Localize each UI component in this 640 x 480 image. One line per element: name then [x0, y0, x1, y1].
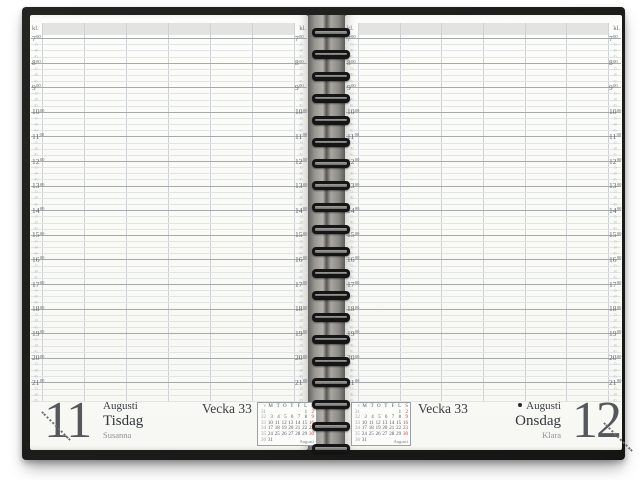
quarter-line	[346, 389, 621, 390]
hour-minutes-superscript: 00	[303, 305, 308, 310]
hour-number: 16	[295, 255, 303, 264]
hour-number: 13	[609, 181, 617, 190]
quarter-tick-label: 15	[297, 166, 305, 170]
quarter-line	[31, 118, 307, 119]
quarter-tick-label: 30	[611, 197, 619, 201]
spiral-loop	[312, 422, 350, 431]
quarter-line	[346, 204, 621, 205]
right-page: kl.kl.7007001515303045458008001515303045…	[345, 15, 622, 450]
spiral-loop-highlight	[315, 184, 347, 187]
hour-line	[346, 284, 621, 285]
hour-label: 1600	[347, 256, 359, 264]
quarter-line	[31, 346, 307, 347]
quarter-line	[346, 346, 621, 347]
quarter-tick-label: 15	[348, 387, 356, 391]
hour-minutes-superscript: 00	[355, 206, 360, 211]
quarter-line	[31, 370, 307, 371]
quarter-tick-label: 30	[32, 344, 39, 348]
hour-minutes-superscript: 00	[40, 329, 45, 334]
quarter-tick-label: 15	[611, 264, 619, 268]
quarter-line	[346, 69, 621, 70]
hour-label: 1700	[347, 281, 359, 289]
hour-number: 14	[295, 206, 303, 215]
quarter-tick-label: 30	[32, 74, 39, 78]
quarter-tick-label: 15	[611, 289, 619, 293]
quarter-tick-label: 15	[32, 387, 39, 391]
spiral-loop	[312, 181, 350, 190]
hour-number: 15	[295, 230, 303, 239]
quarter-tick-label: 15	[297, 215, 305, 219]
hour-label: 1200	[609, 158, 621, 166]
mini-calendar-day-cell	[288, 438, 295, 444]
hour-minutes-superscript: 00	[355, 354, 360, 359]
hour-minutes-superscript: 00	[40, 108, 45, 113]
quarter-tick-label: 30	[297, 49, 305, 53]
hour-label: 1400	[32, 207, 44, 215]
quarter-tick-label: 30	[32, 49, 39, 53]
quarter-tick-label: 15	[611, 363, 619, 367]
spiral-loop-highlight	[315, 403, 347, 406]
quarter-tick-label: 30	[32, 270, 39, 274]
quarter-tick-label: 15	[297, 264, 305, 268]
quarter-tick-label: 30	[32, 295, 39, 299]
quarter-line	[31, 130, 307, 131]
quarter-tick-label: 15	[32, 313, 39, 317]
column-divider	[126, 23, 127, 401]
quarter-line	[31, 100, 307, 101]
mini-calendar-grid: vMTOTFLS31123234567893310111213141516341…	[353, 404, 409, 443]
hour-number: 12	[32, 157, 40, 166]
hour-line	[346, 186, 621, 187]
hour-number: 11	[32, 132, 39, 141]
right-mini-calendar: vMTOTFLS31123234567893310111213141516341…	[351, 402, 411, 446]
hour-number: 21	[32, 378, 40, 387]
quarter-tick-label: 30	[348, 221, 356, 225]
spiral-loop	[312, 225, 350, 234]
hour-minutes-superscript: 00	[355, 378, 360, 383]
hour-label: 1200	[32, 158, 44, 166]
quarter-tick-label: 15	[32, 67, 39, 71]
hour-line	[31, 382, 307, 383]
hour-minutes-superscript: 00	[355, 108, 360, 113]
quarter-line	[346, 296, 621, 297]
hour-minutes-superscript: 00	[40, 206, 45, 211]
quarter-tick-label: 30	[297, 74, 305, 78]
quarter-tick-label: 15	[297, 190, 305, 194]
spiral-loop-highlight	[315, 141, 347, 144]
hour-minutes-superscript: 00	[617, 354, 622, 359]
mini-calendar-day-cell: 36	[259, 438, 267, 444]
column-divider	[441, 23, 442, 401]
spiral-loop	[312, 291, 350, 300]
hour-label: 1700	[609, 281, 621, 289]
spiral-loop-highlight	[315, 316, 347, 319]
hour-line	[346, 358, 621, 359]
right-day-number: 12	[572, 398, 620, 444]
hour-line	[346, 112, 621, 113]
quarter-line	[346, 327, 621, 328]
hour-label: 700	[609, 35, 617, 43]
hour-label: 1100	[295, 133, 307, 141]
hour-line	[31, 235, 307, 236]
hour-label: 2100	[32, 379, 44, 387]
spiral-loop-highlight	[315, 381, 347, 384]
quarter-line	[346, 229, 621, 230]
quarter-tick-label: 30	[611, 270, 619, 274]
spiral-loop	[312, 269, 350, 278]
hour-minutes-superscript: 00	[303, 329, 308, 334]
quarter-line	[31, 247, 307, 248]
left-nameday-label: Susanna	[103, 430, 143, 440]
spiral-loop	[312, 247, 350, 256]
quarter-tick-label: 30	[32, 246, 39, 250]
quarter-tick-label: 30	[611, 123, 619, 127]
quarter-tick-label: 15	[297, 43, 305, 47]
hour-number: 10	[32, 107, 40, 116]
hour-number: 18	[609, 304, 617, 313]
quarter-line	[346, 100, 621, 101]
quarter-tick-label: 30	[297, 369, 305, 373]
right-month-row: Augusti	[459, 400, 561, 412]
quarter-line	[346, 192, 621, 193]
hour-line	[31, 186, 307, 187]
spiral-loop	[312, 94, 350, 103]
hour-number: 14	[32, 206, 40, 215]
hour-number: 20	[295, 353, 303, 362]
quarter-line	[346, 167, 621, 168]
right-nameday-label: Klara	[459, 430, 561, 440]
quarter-line	[346, 143, 621, 144]
quarter-line	[31, 204, 307, 205]
quarter-tick-label: 30	[348, 393, 356, 397]
hour-label: 800	[347, 59, 355, 67]
quarter-line	[31, 364, 307, 365]
hour-line	[31, 210, 307, 211]
quarter-tick-label: 30	[297, 295, 305, 299]
hour-minutes-superscript: 00	[617, 132, 622, 137]
mini-calendar-month-label: Augusti	[393, 439, 408, 444]
hour-minutes-superscript: 00	[617, 378, 622, 383]
hour-number: 19	[32, 329, 40, 338]
quarter-tick-label: 15	[611, 141, 619, 145]
hour-line	[346, 309, 621, 310]
hour-minutes-superscript: 00	[303, 280, 308, 285]
quarter-line	[346, 266, 621, 267]
hour-number: 13	[32, 181, 40, 190]
hour-line	[346, 235, 621, 236]
hour-minutes-superscript: 00	[36, 34, 41, 39]
column-divider	[168, 23, 169, 401]
hour-minutes-superscript: 00	[299, 59, 304, 64]
hour-number: 21	[609, 378, 617, 387]
hour-minutes-superscript: 00	[617, 157, 622, 162]
hour-minutes-superscript: 00	[351, 83, 356, 88]
hour-label: 800	[32, 59, 40, 67]
hour-minutes-superscript: 00	[355, 231, 360, 236]
quarter-line	[31, 93, 307, 94]
hour-minutes-superscript: 00	[617, 182, 622, 187]
hour-label: 1600	[609, 256, 621, 264]
hour-minutes-superscript: 00	[303, 354, 308, 359]
hour-label: 1500	[609, 231, 621, 239]
hour-minutes-superscript: 00	[303, 255, 308, 260]
mini-calendar-month-label: Augusti	[299, 439, 314, 444]
quarter-tick-label: 15	[611, 92, 619, 96]
time-header-label: kl.	[32, 25, 39, 33]
quarter-tick-label: 30	[348, 147, 356, 151]
hour-number: 20	[609, 353, 617, 362]
quarter-line	[31, 296, 307, 297]
hour-minutes-superscript: 00	[36, 59, 41, 64]
hour-label: 900	[295, 84, 303, 92]
quarter-line	[31, 315, 307, 316]
hour-number: 16	[32, 255, 40, 264]
quarter-line	[346, 370, 621, 371]
hour-label: 1400	[295, 207, 307, 215]
quarter-line	[346, 57, 621, 58]
quarter-line	[346, 278, 621, 279]
quarter-line	[31, 272, 307, 273]
quarter-tick-label: 30	[32, 98, 39, 102]
spiral-loop-highlight	[315, 272, 347, 275]
quarter-line	[31, 278, 307, 279]
hour-minutes-superscript: 00	[351, 59, 356, 64]
hour-label: 1700	[32, 281, 44, 289]
left-month-label: Augusti	[103, 400, 143, 412]
quarter-tick-label: 30	[32, 393, 39, 397]
hour-label: 1100	[609, 133, 621, 141]
quarter-tick-label: 15	[611, 338, 619, 342]
hour-line	[31, 284, 307, 285]
hour-label: 1400	[609, 207, 621, 215]
quarter-tick-label: 15	[32, 338, 39, 342]
quarter-line	[31, 216, 307, 217]
hour-minutes-superscript: 00	[617, 280, 622, 285]
quarter-line	[31, 179, 307, 180]
hour-number: 17	[609, 280, 617, 289]
spiral-loop	[312, 400, 350, 409]
spiral-loop-highlight	[315, 250, 347, 253]
quarter-line	[31, 327, 307, 328]
quarter-tick-label: 15	[297, 117, 305, 121]
hour-line	[31, 38, 307, 39]
hour-number: 15	[609, 230, 617, 239]
hour-number: 17	[295, 280, 303, 289]
quarter-line	[346, 272, 621, 273]
quarter-tick-label: 30	[611, 172, 619, 176]
hour-label: 1900	[32, 330, 44, 338]
hour-number: 10	[609, 107, 617, 116]
quarter-line	[31, 69, 307, 70]
quarter-tick-label: 15	[348, 43, 356, 47]
quarter-line	[31, 173, 307, 174]
spiral-loop-highlight	[315, 162, 347, 165]
quarter-tick-label: 15	[611, 190, 619, 194]
hour-line	[346, 136, 621, 137]
hour-line	[31, 112, 307, 113]
quarter-tick-label: 30	[32, 320, 39, 324]
hour-minutes-superscript: 00	[617, 231, 622, 236]
quarter-line	[346, 124, 621, 125]
hour-number: 12	[609, 157, 617, 166]
mini-calendar-day-cell	[368, 438, 375, 444]
hour-number: 14	[609, 206, 617, 215]
quarter-tick-label: 30	[611, 295, 619, 299]
quarter-line	[31, 192, 307, 193]
hour-label: 1500	[32, 231, 44, 239]
mini-calendar-day-cell: 36	[353, 438, 361, 444]
spiral-loop-highlight	[315, 294, 347, 297]
hour-label: 1900	[609, 330, 621, 338]
hour-minutes-superscript: 00	[299, 34, 304, 39]
spiral-loop	[312, 116, 350, 125]
quarter-tick-label: 30	[348, 197, 356, 201]
hour-minutes-superscript: 00	[303, 206, 308, 211]
quarter-line	[31, 290, 307, 291]
left-weekday-label: Tisdag	[103, 413, 143, 429]
hour-minutes-superscript: 00	[355, 182, 360, 187]
hour-number: 18	[295, 304, 303, 313]
quarter-line	[346, 118, 621, 119]
quarter-tick-label: 15	[611, 67, 619, 71]
quarter-tick-label: 30	[611, 221, 619, 225]
hour-number: 16	[609, 255, 617, 264]
spiral-loop	[312, 357, 350, 366]
spiral-loop	[312, 203, 350, 212]
quarter-line	[31, 143, 307, 144]
spiral-loop-highlight	[315, 228, 347, 231]
hour-label: 900	[347, 84, 355, 92]
hour-number: 10	[295, 107, 303, 116]
quarter-line	[31, 75, 307, 76]
quarter-tick-label: 15	[297, 338, 305, 342]
left-page: kl.kl.7007001515303045458008001515303045…	[30, 15, 308, 450]
quarter-tick-label: 15	[297, 289, 305, 293]
hour-line	[346, 63, 621, 64]
hour-number: 19	[609, 329, 617, 338]
quarter-line	[346, 339, 621, 340]
quarter-line	[31, 155, 307, 156]
hour-minutes-superscript: 00	[303, 108, 308, 113]
hour-number: 21	[295, 378, 303, 387]
hour-label: 900	[609, 84, 617, 92]
hour-line	[346, 382, 621, 383]
hour-minutes-superscript: 00	[617, 305, 622, 310]
hour-line	[31, 333, 307, 334]
hour-number: 13	[295, 181, 303, 190]
spiral-loop-highlight	[315, 53, 347, 56]
quarter-tick-label: 15	[348, 67, 356, 71]
hour-line	[346, 38, 621, 39]
quarter-line	[31, 223, 307, 224]
spiral-loop	[312, 444, 350, 453]
quarter-tick-label: 15	[348, 215, 356, 219]
hour-minutes-superscript: 00	[40, 305, 45, 310]
quarter-line	[31, 302, 307, 303]
hour-minutes-superscript: 00	[355, 305, 360, 310]
spiral-loop	[312, 335, 350, 344]
quarter-tick-label: 15	[348, 190, 356, 194]
quarter-tick-label: 30	[611, 49, 619, 53]
quarter-tick-label: 30	[611, 74, 619, 78]
quarter-line	[31, 57, 307, 58]
hour-label: 1300	[295, 182, 307, 190]
quarter-tick-label: 15	[611, 166, 619, 170]
quarter-line	[31, 241, 307, 242]
quarter-tick-label: 15	[32, 363, 39, 367]
hour-minutes-superscript: 00	[40, 255, 45, 260]
quarter-tick-label: 15	[297, 92, 305, 96]
hour-minutes-superscript: 00	[303, 132, 308, 137]
hour-label: 1200	[295, 158, 307, 166]
spiral-loop	[312, 378, 350, 387]
quarter-tick-label: 30	[611, 320, 619, 324]
quarter-line	[31, 352, 307, 353]
quarter-tick-label: 15	[32, 190, 39, 194]
quarter-line	[31, 229, 307, 230]
quarter-line	[346, 179, 621, 180]
quarter-line	[31, 149, 307, 150]
quarter-tick-label: 30	[32, 123, 39, 127]
spiral-loop	[312, 50, 350, 59]
quarter-tick-label: 30	[348, 172, 356, 176]
quarter-line	[31, 389, 307, 390]
hour-minutes-superscript: 00	[40, 280, 45, 285]
hour-minutes-superscript: 00	[355, 280, 360, 285]
hour-minutes-superscript: 00	[613, 34, 618, 39]
quarter-tick-label: 30	[297, 221, 305, 225]
quarter-line	[346, 44, 621, 45]
quarter-tick-label: 15	[32, 43, 39, 47]
hour-line	[346, 161, 621, 162]
hour-line	[346, 259, 621, 260]
quarter-tick-label: 30	[32, 197, 39, 201]
quarter-line	[31, 106, 307, 107]
quarter-tick-label: 30	[611, 369, 619, 373]
quarter-line	[346, 75, 621, 76]
quarter-tick-label: 30	[348, 344, 356, 348]
quarter-tick-label: 30	[32, 147, 39, 151]
quarter-tick-label: 30	[348, 369, 356, 373]
quarter-line	[31, 253, 307, 254]
left-day-info: Augusti Tisdag Susanna	[103, 400, 143, 440]
hour-label: 1900	[295, 330, 307, 338]
spiral-loop-highlight	[315, 447, 347, 450]
quarter-line	[346, 130, 621, 131]
hour-minutes-superscript: 00	[40, 157, 45, 162]
quarter-line	[346, 149, 621, 150]
hour-label: 1300	[609, 182, 621, 190]
hour-minutes-superscript: 00	[355, 157, 360, 162]
column-divider	[84, 23, 85, 401]
hour-label: 1800	[347, 305, 359, 313]
spiral-loop-highlight	[315, 119, 347, 122]
quarter-tick-label: 45	[32, 400, 39, 404]
left-week-label: Vecka 33	[202, 402, 252, 416]
mini-calendar-grid: vMTOTFLS31123234567893310111213141516341…	[259, 404, 315, 443]
quarter-tick-label: 15	[32, 289, 39, 293]
hour-minutes-superscript: 00	[36, 83, 41, 88]
quarter-tick-label: 30	[297, 270, 305, 274]
hour-minutes-superscript: 00	[617, 255, 622, 260]
hour-number: 15	[32, 230, 40, 239]
quarter-tick-label: 30	[297, 172, 305, 176]
spiral-loop-highlight	[315, 31, 347, 34]
hour-label: 1100	[32, 133, 44, 141]
hour-minutes-superscript: 00	[40, 132, 45, 137]
quarter-tick-label: 15	[32, 240, 39, 244]
hour-label: 800	[295, 59, 303, 67]
